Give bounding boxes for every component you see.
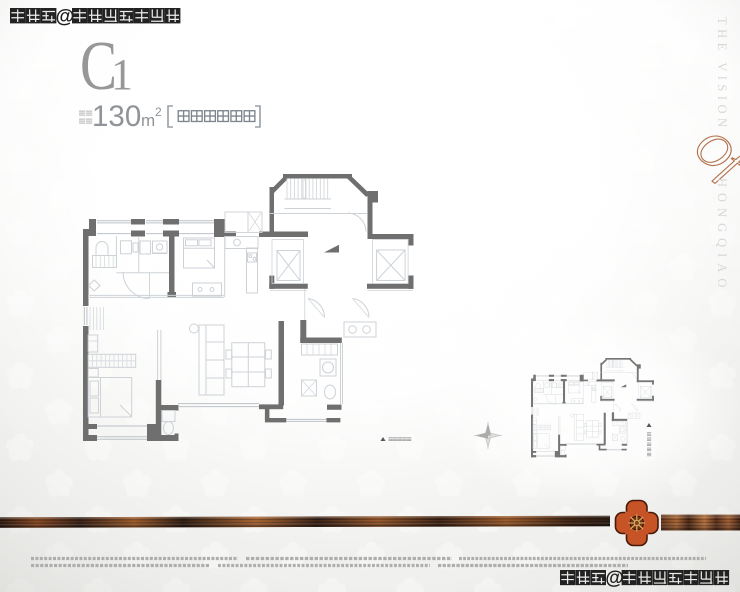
svg-text:@: @ [605,568,624,589]
svg-text:2: 2 [155,105,162,119]
svg-text:@: @ [56,6,75,27]
svg-text:m: m [141,111,155,130]
svg-text:1: 1 [111,50,133,99]
svg-text:THE VISION: THE VISION [715,17,729,132]
svg-text:130: 130 [92,100,141,133]
svg-text:HONGQIAO: HONGQIAO [715,178,729,293]
